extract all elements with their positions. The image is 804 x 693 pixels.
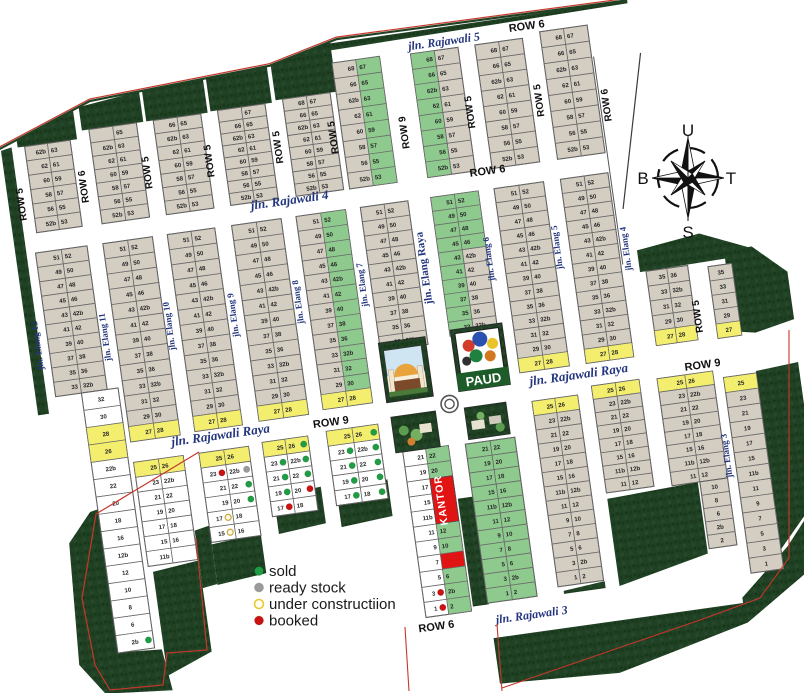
svg-text:ready stock: ready stock [269, 580, 346, 597]
svg-text:B: B [637, 169, 648, 188]
svg-text:2b: 2b [131, 640, 139, 647]
svg-text:sold: sold [269, 563, 297, 580]
svg-text:2b: 2b [717, 524, 725, 531]
svg-text:2b: 2b [512, 575, 520, 582]
svg-text:under constructiion: under constructiion [269, 596, 396, 613]
svg-text:booked: booked [269, 613, 318, 630]
svg-text:S: S [682, 223, 693, 242]
svg-text:2b: 2b [580, 559, 588, 566]
svg-text:U: U [682, 121, 694, 140]
svg-text:2b: 2b [448, 589, 456, 596]
svg-text:T: T [726, 169, 736, 188]
